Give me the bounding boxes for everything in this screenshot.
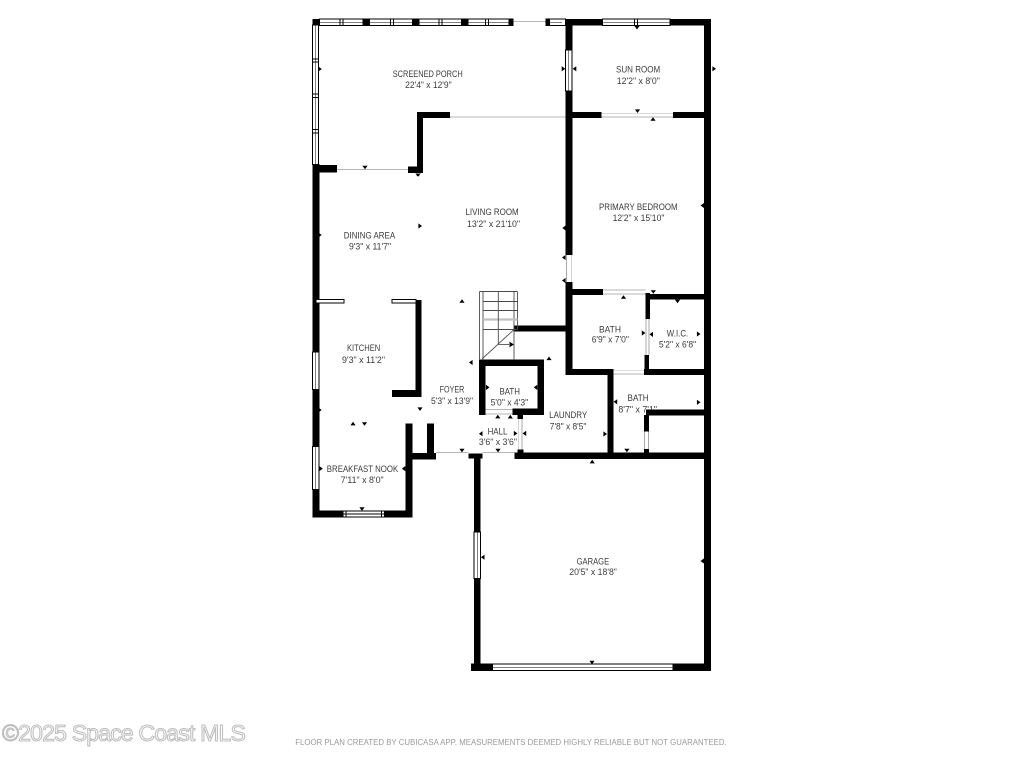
svg-text:DINING AREA: DINING AREA xyxy=(344,231,396,241)
svg-text:PRIMARY BEDROOM: PRIMARY BEDROOM xyxy=(599,202,678,212)
svg-text:W.I.C.: W.I.C. xyxy=(667,329,688,339)
svg-text:HALL: HALL xyxy=(488,427,508,437)
svg-text:KITCHEN: KITCHEN xyxy=(347,343,380,353)
svg-text:SCREENED PORCH: SCREENED PORCH xyxy=(393,69,463,79)
svg-text:6'9" x 7'0": 6'9" x 7'0" xyxy=(592,335,629,345)
svg-text:BATH: BATH xyxy=(628,393,649,403)
svg-text:5'3" x 13'9": 5'3" x 13'9" xyxy=(431,396,473,406)
svg-text:BREAKFAST NOOK: BREAKFAST NOOK xyxy=(327,464,399,474)
svg-text:20'5" x 18'8": 20'5" x 18'8" xyxy=(569,567,617,577)
svg-text:GARAGE: GARAGE xyxy=(577,557,610,567)
svg-text:22'4" x 12'9": 22'4" x 12'9" xyxy=(405,80,452,90)
svg-text:FLOOR PLAN CREATED BY CUBICASA: FLOOR PLAN CREATED BY CUBICASA APP. MEAS… xyxy=(295,738,727,747)
svg-text:9'3" x 11'7": 9'3" x 11'7" xyxy=(349,242,391,252)
svg-text:3'6" x 3'6": 3'6" x 3'6" xyxy=(479,437,517,447)
svg-text:9'3" x 11'2": 9'3" x 11'2" xyxy=(342,355,385,365)
svg-text:LAUNDRY: LAUNDRY xyxy=(549,410,587,420)
svg-text:7'8" x 8'5": 7'8" x 8'5" xyxy=(550,422,587,432)
svg-text:12'2" x 8'0": 12'2" x 8'0" xyxy=(617,76,660,86)
svg-text:5'2" x 6'8": 5'2" x 6'8" xyxy=(659,340,696,350)
svg-text:©2025 Space Coast MLS: ©2025 Space Coast MLS xyxy=(2,720,246,746)
svg-text:7'11" x 8'0": 7'11" x 8'0" xyxy=(341,475,384,485)
svg-text:BATH: BATH xyxy=(599,324,621,334)
svg-text:12'2" x 15'10": 12'2" x 15'10" xyxy=(613,213,665,223)
svg-text:BATH: BATH xyxy=(499,386,520,396)
svg-text:LIVING ROOM: LIVING ROOM xyxy=(466,207,519,217)
svg-text:5'0" x 4'3": 5'0" x 4'3" xyxy=(491,398,529,408)
svg-text:FOYER: FOYER xyxy=(440,385,465,395)
svg-text:SUN ROOM: SUN ROOM xyxy=(616,65,660,75)
svg-text:13'2" x 21'10": 13'2" x 21'10" xyxy=(467,219,520,229)
